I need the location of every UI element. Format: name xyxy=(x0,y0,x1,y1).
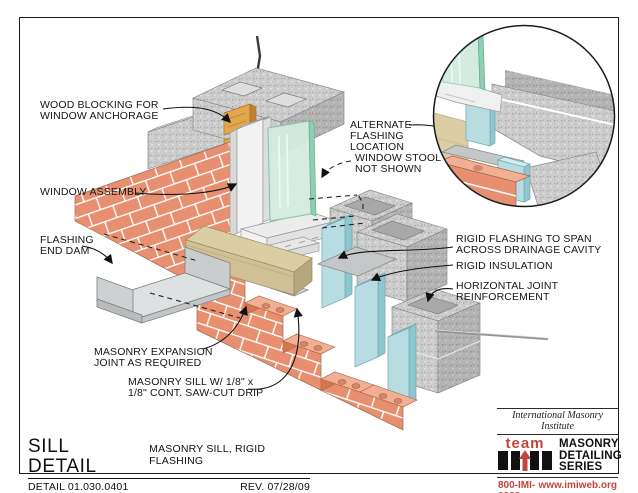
label-window-assembly: WINDOW ASSEMBLY xyxy=(40,187,147,198)
website-url: www.imiweb.org xyxy=(538,480,617,493)
enlargement-inset xyxy=(430,26,620,213)
red-arrow-icon xyxy=(519,450,531,471)
label-line: ACROSS DRAINAGE CAVITY xyxy=(456,245,601,256)
window-glass xyxy=(268,121,316,221)
detail-sheet: WOOD BLOCKING FOR WINDOW ANCHORAGE WINDO… xyxy=(0,0,638,493)
team-imi-logo: team xyxy=(497,437,553,476)
series-title: MASONRY DETAILING SERIES xyxy=(559,437,622,474)
imi-block-logo-icon xyxy=(497,450,553,471)
phone-number: 800-IMI-0988 xyxy=(498,480,538,493)
label-line: FLASHING xyxy=(350,131,412,142)
institute-name: International Masonry Institute xyxy=(497,409,618,434)
label-flashing-end-dam: FLASHING END DAM xyxy=(40,235,94,257)
label-rigid-insulation: RIGID INSULATION xyxy=(456,261,553,272)
label-rigid-flashing: RIGID FLASHING TO SPAN ACROSS DRAINAGE C… xyxy=(456,234,601,256)
team-wordmark: team xyxy=(497,437,553,450)
label-alternate-flashing: ALTERNATE FLASHING LOCATION xyxy=(350,120,412,152)
label-horizontal-joint: HORIZONTAL JOINT REINFORCEMENT xyxy=(456,281,558,303)
sheet-subtitle: MASONRY SILL, RIGID FLASHING xyxy=(149,443,310,467)
label-line: END DAM xyxy=(40,246,94,257)
title-block: SILL DETAIL MASONRY SILL, RIGID FLASHING… xyxy=(28,437,310,493)
detail-number: DETAIL 01.030.0401 xyxy=(28,481,129,493)
revision-date: REV. 07/28/09 xyxy=(240,481,310,493)
label-masonry-sill: MASONRY SILL W/ 1/8" x 1/8" CONT. SAW-CU… xyxy=(128,377,263,399)
label-line: NOT SHOWN xyxy=(355,164,441,175)
label-line: JOINT AS REQUIRED xyxy=(94,358,213,369)
label-masonry-expansion: MASONRY EXPANSION JOINT AS REQUIRED xyxy=(94,347,213,369)
sheet-title: SILL DETAIL xyxy=(28,437,135,477)
label-line: WINDOW ANCHORAGE xyxy=(40,111,159,122)
label-line: REINFORCEMENT xyxy=(456,292,558,303)
label-line: WINDOW ASSEMBLY xyxy=(40,187,147,198)
label-line: 1/8" CONT. SAW-CUT DRIP xyxy=(128,388,263,399)
label-wood-blocking: WOOD BLOCKING FOR WINDOW ANCHORAGE xyxy=(40,100,159,122)
label-window-stool: WINDOW STOOL NOT SHOWN xyxy=(355,153,441,175)
label-line: LOCATION xyxy=(350,142,412,153)
imi-logo-block: International Masonry Institute team MAS… xyxy=(497,408,618,493)
label-line: RIGID INSULATION xyxy=(456,261,553,272)
